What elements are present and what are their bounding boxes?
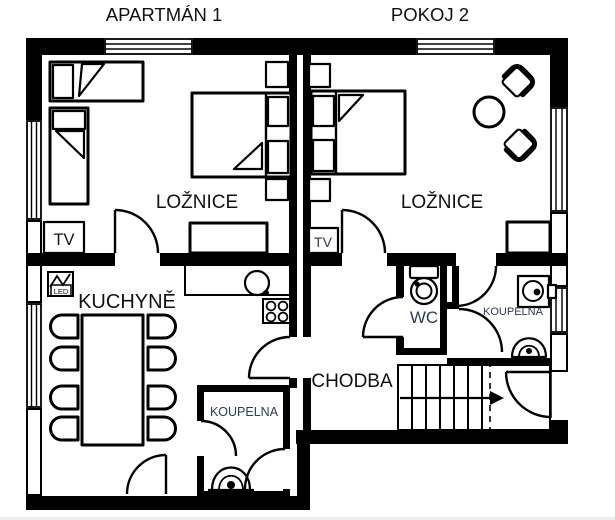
kitchen-sink-icon [245,271,269,296]
label-led: LED [54,287,69,296]
door-swing-bathroom1-left [201,421,236,456]
door-swing-bathroom1-right [245,449,285,489]
door-swing-entrance [506,372,551,418]
label-kuchyne: KUCHYNĚ [78,290,176,313]
nightstand [309,179,330,201]
door-swing-bedroom2 [342,210,385,253]
door-swing-bathroom2-top [456,266,496,306]
bedroom1 [44,62,291,253]
label-tv-1: TV [53,231,74,249]
window-top-left [104,37,193,56]
dining-table [82,315,143,445]
stairs-arrow-icon [400,391,504,405]
wc-room [410,266,438,304]
label-loznice-1: LOŽNICE [156,191,238,213]
toilet-icon [410,266,438,304]
kitchen-counter [185,266,290,295]
single-bed-left [50,108,88,204]
floor-plan: APARTMÁN 1 POKOJ 2 LOŽNICE LOŽNICE TV TV… [0,0,615,520]
double-bed-1 [192,93,291,177]
nightstand [309,64,330,87]
door-swing-kitchen [249,337,290,378]
door-swing-kitchen-exit [127,455,166,494]
title-pokoj2: POKOJ 2 [391,4,469,25]
bathroom-sink-icon [512,338,546,357]
bedroom2 [309,64,550,253]
window-left-bedroom [25,120,43,220]
nightstand [266,62,288,87]
label-koupelna-1: KOUPELNA [210,405,279,419]
title-apartman1: APARTMÁN 1 [106,4,223,25]
label-koupelna-2: KOUPELNA [483,306,544,318]
wardrobe [507,222,550,253]
door-swing-wc [363,297,403,337]
stove-icon [263,299,290,323]
armchair [502,127,537,162]
armchair [500,64,535,99]
window-left-kitchen [25,303,43,408]
label-wc: WC [410,308,438,327]
round-table [474,97,504,127]
double-bed-2 [311,91,405,174]
label-tv-2: TV [314,234,333,250]
label-chodba: CHODBA [311,371,393,392]
single-bed-top [50,62,143,101]
nightstand [266,179,288,200]
window-right-bedroom [549,107,569,212]
label-loznice-2: LOŽNICE [401,191,483,213]
door-swing-bedroom1 [115,210,158,253]
window-top-right [416,37,495,56]
dresser [190,223,267,253]
floor-plan-svg: APARTMÁN 1 POKOJ 2 LOŽNICE LOŽNICE TV TV… [0,0,615,520]
